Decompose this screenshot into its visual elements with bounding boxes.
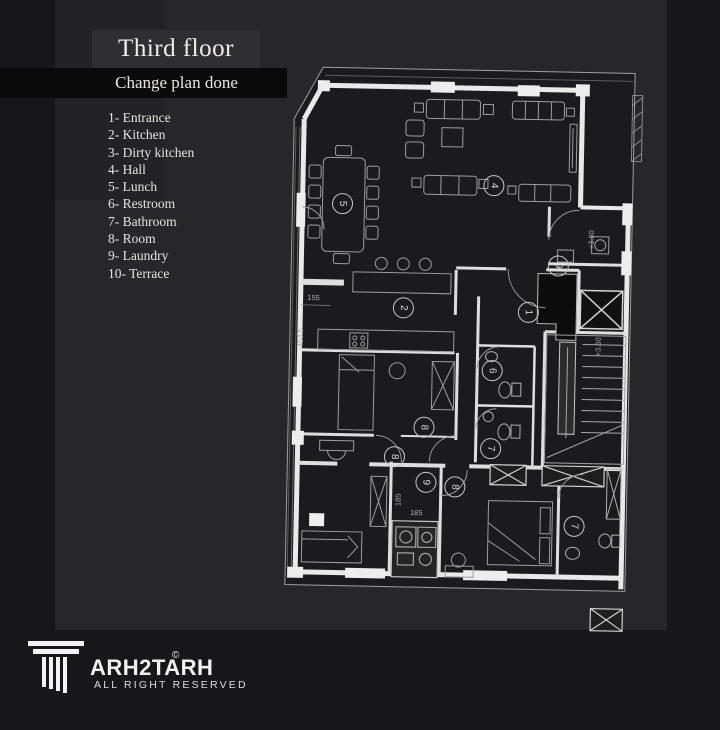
brand-text: ARH2TARH	[90, 655, 213, 681]
dim-453: 453.5	[296, 328, 305, 347]
floor-plan-svg: 5 4 2 9 1 6 8 8 9 8 7 7 155 453.5 185 18…	[0, 0, 720, 725]
laundry-bottom	[391, 521, 438, 578]
copyright-mark: ©	[172, 650, 179, 661]
svg-text:7: 7	[569, 523, 580, 529]
brand-logo: ARH2TARH © ALL RIGHT RESERVED	[28, 640, 228, 700]
level-marker-b: +3.80	[594, 337, 603, 356]
svg-text:8: 8	[389, 454, 400, 460]
svg-text:9: 9	[420, 479, 431, 485]
dim-185-a: 185	[393, 493, 402, 506]
svg-text:7: 7	[485, 446, 496, 452]
svg-text:6: 6	[487, 368, 498, 374]
dim-155: 155	[307, 293, 320, 302]
svg-text:1: 1	[523, 309, 534, 315]
rights-text: ALL RIGHT RESERVED	[94, 679, 248, 691]
column-logo-icon	[28, 641, 84, 693]
svg-text:8: 8	[418, 424, 429, 430]
dim-185-b: 185	[410, 508, 423, 517]
svg-text:5: 5	[337, 201, 348, 207]
elevator-shaft	[580, 290, 623, 329]
svg-text:2: 2	[398, 305, 409, 311]
svg-text:8: 8	[449, 484, 460, 490]
svg-text:4: 4	[488, 183, 499, 189]
svg-text:9: 9	[553, 263, 564, 269]
level-marker-a: +3.80	[587, 230, 596, 249]
floor-plan: 5 4 2 9 1 6 8 8 9 8 7 7 155 453.5 185 18…	[0, 0, 720, 725]
poster-background: { "header": { "title": "Third floor", "s…	[0, 0, 720, 720]
